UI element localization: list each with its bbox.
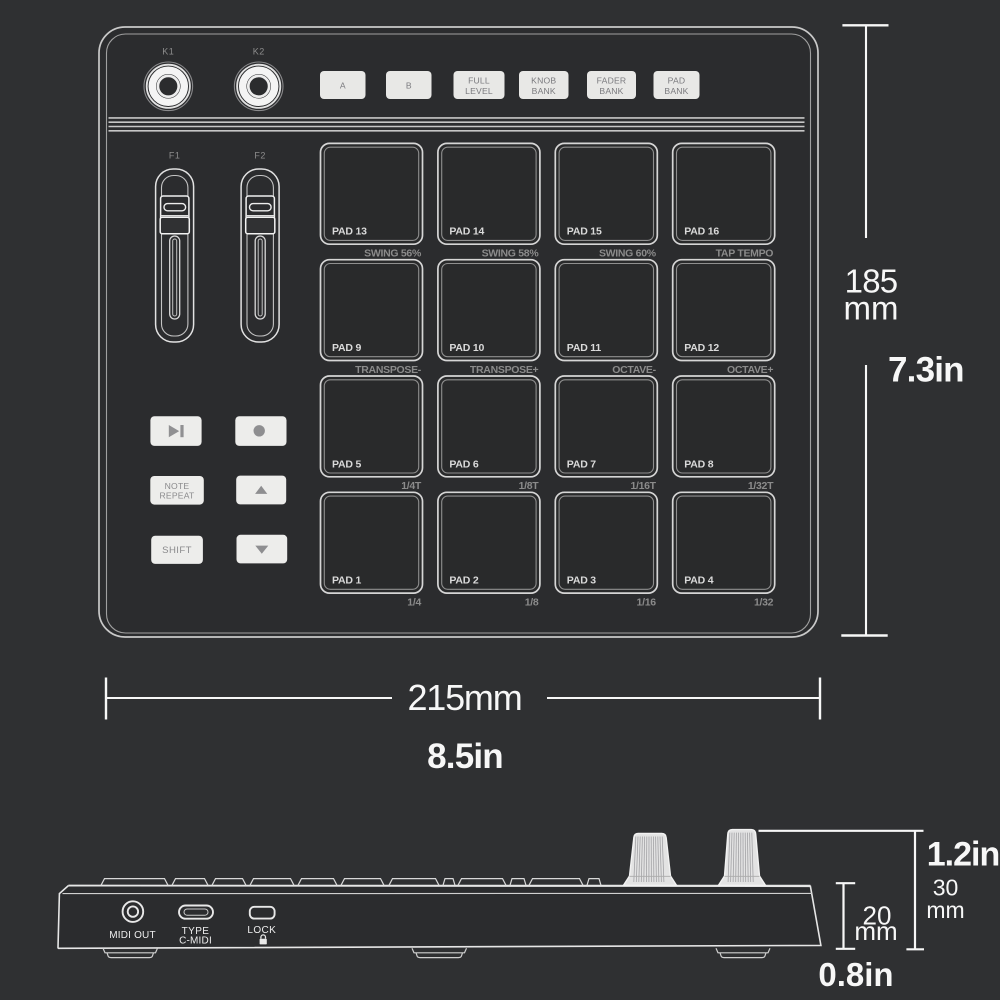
svg-text:BANK: BANK: [664, 86, 688, 96]
svg-text:A: A: [340, 81, 346, 91]
svg-text:PAD 16: PAD 16: [684, 226, 719, 238]
svg-text:1/8T: 1/8T: [519, 480, 540, 492]
svg-text:1.2in: 1.2in: [927, 836, 999, 874]
svg-text:LEVEL: LEVEL: [465, 86, 493, 96]
svg-text:PAD 7: PAD 7: [567, 458, 597, 470]
svg-text:PAD 12: PAD 12: [684, 342, 719, 354]
svg-text:MIDI OUT: MIDI OUT: [109, 930, 156, 941]
svg-text:FULL: FULL: [468, 76, 490, 86]
svg-text:PAD 15: PAD 15: [567, 226, 602, 238]
svg-text:BANK: BANK: [532, 86, 556, 96]
svg-text:1/4T: 1/4T: [401, 480, 422, 492]
svg-text:215mm: 215mm: [407, 677, 521, 718]
svg-text:SWING 58%: SWING 58%: [482, 248, 540, 260]
svg-text:1/16T: 1/16T: [630, 480, 656, 492]
svg-text:PAD 1: PAD 1: [332, 575, 362, 587]
svg-text:F1: F1: [169, 151, 181, 161]
svg-text:PAD: PAD: [668, 76, 686, 86]
svg-text:PAD 4: PAD 4: [684, 575, 714, 587]
svg-text:PAD 6: PAD 6: [449, 458, 479, 470]
svg-text:PAD 14: PAD 14: [449, 226, 484, 238]
svg-text:PAD 9: PAD 9: [332, 342, 362, 354]
svg-text:F2: F2: [254, 151, 266, 161]
svg-text:7.3in: 7.3in: [888, 351, 964, 390]
svg-text:1/16: 1/16: [637, 596, 657, 608]
svg-text:1/4: 1/4: [407, 596, 421, 608]
svg-text:PAD 8: PAD 8: [684, 458, 714, 470]
svg-text:mm: mm: [926, 897, 964, 923]
svg-text:SHIFT: SHIFT: [162, 545, 192, 556]
svg-text:PAD 13: PAD 13: [332, 226, 367, 238]
svg-text:B: B: [406, 81, 412, 91]
svg-text:1/32: 1/32: [754, 596, 774, 608]
svg-text:TRANSPOSE+: TRANSPOSE+: [470, 364, 539, 376]
svg-text:PAD 5: PAD 5: [332, 458, 362, 470]
svg-text:K1: K1: [162, 47, 174, 57]
svg-text:mm: mm: [844, 290, 899, 327]
svg-text:mm: mm: [854, 916, 897, 946]
svg-text:8.5in: 8.5in: [427, 737, 503, 776]
svg-text:TRANSPOSE-: TRANSPOSE-: [355, 364, 422, 376]
svg-text:0.8in: 0.8in: [818, 956, 893, 993]
svg-text:OCTAVE+: OCTAVE+: [727, 364, 773, 376]
svg-text:SWING 56%: SWING 56%: [364, 248, 422, 260]
svg-text:PAD 10: PAD 10: [449, 342, 484, 354]
svg-text:KNOB: KNOB: [531, 76, 556, 86]
svg-text:PAD 11: PAD 11: [567, 342, 602, 354]
svg-text:BANK: BANK: [599, 86, 623, 96]
svg-text:FADER: FADER: [597, 76, 627, 86]
svg-text:PAD 2: PAD 2: [449, 575, 479, 587]
svg-text:REPEAT: REPEAT: [160, 491, 195, 501]
svg-text:1/32T: 1/32T: [748, 480, 774, 492]
svg-text:1/8: 1/8: [525, 596, 539, 608]
svg-text:TAP TEMPO: TAP TEMPO: [716, 248, 774, 260]
svg-text:C-MIDI: C-MIDI: [179, 936, 212, 947]
svg-text:K2: K2: [253, 47, 265, 57]
svg-text:PAD 3: PAD 3: [567, 575, 597, 587]
svg-text:SWING 60%: SWING 60%: [599, 248, 657, 260]
svg-text:NOTE: NOTE: [165, 481, 190, 491]
svg-text:OCTAVE-: OCTAVE-: [612, 364, 656, 376]
svg-text:LOCK: LOCK: [247, 925, 276, 936]
